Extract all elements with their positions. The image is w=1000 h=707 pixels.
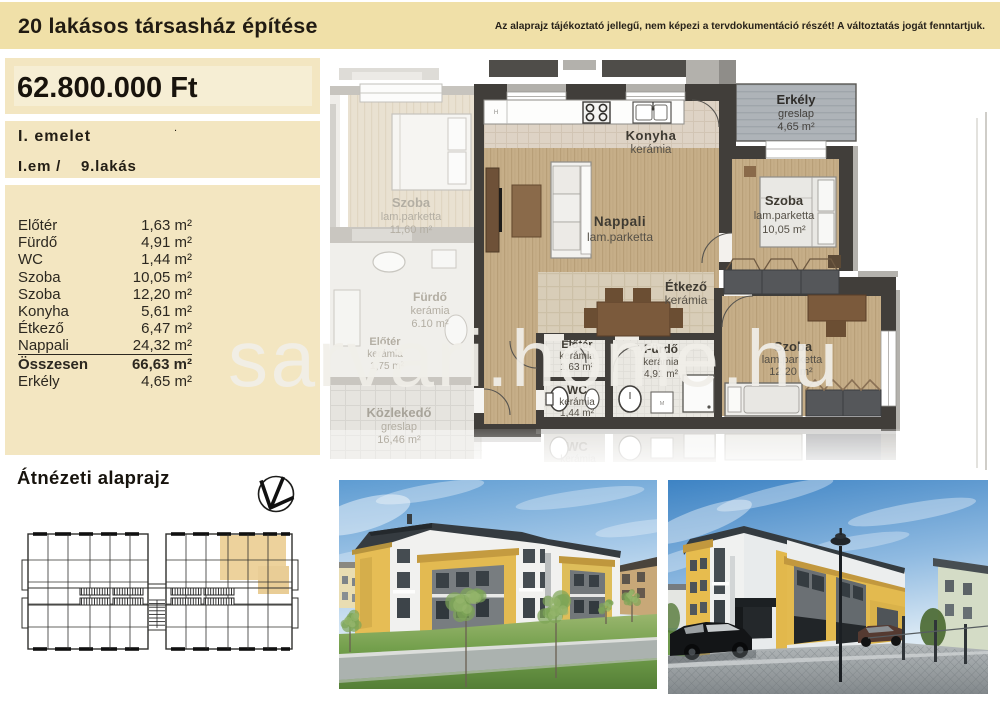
svg-text:Szoba: Szoba [392,195,431,210]
svg-text:lam.parketta: lam.parketta [381,211,442,223]
svg-text:16,46 m²: 16,46 m² [377,434,421,446]
svg-text:4,65 m²: 4,65 m² [777,121,815,133]
svg-text:Fürdő: Fürdő [413,290,447,304]
svg-text:Közlekedő: Közlekedő [366,405,431,420]
svg-text:1,44 m²: 1,44 m² [560,408,595,419]
svg-text:greslap: greslap [778,108,814,120]
svg-text:Étkező: Étkező [665,279,707,294]
svg-text:lam.parketta: lam.parketta [587,230,653,244]
svg-text:kerámia: kerámia [631,144,673,156]
svg-text:Nappali: Nappali [594,214,646,229]
svg-text:Szoba: Szoba [765,193,804,208]
svg-text:kerámia: kerámia [665,293,708,307]
svg-text:Konyha: Konyha [626,128,677,143]
svg-text:greslap: greslap [381,421,417,433]
svg-text:lam.parketta: lam.parketta [754,210,815,222]
svg-text:10,05 m²: 10,05 m² [762,224,806,236]
svg-text:Erkély: Erkély [776,92,816,107]
svg-text:11,60 m²: 11,60 m² [390,224,433,236]
svg-text:H: H [494,110,498,116]
